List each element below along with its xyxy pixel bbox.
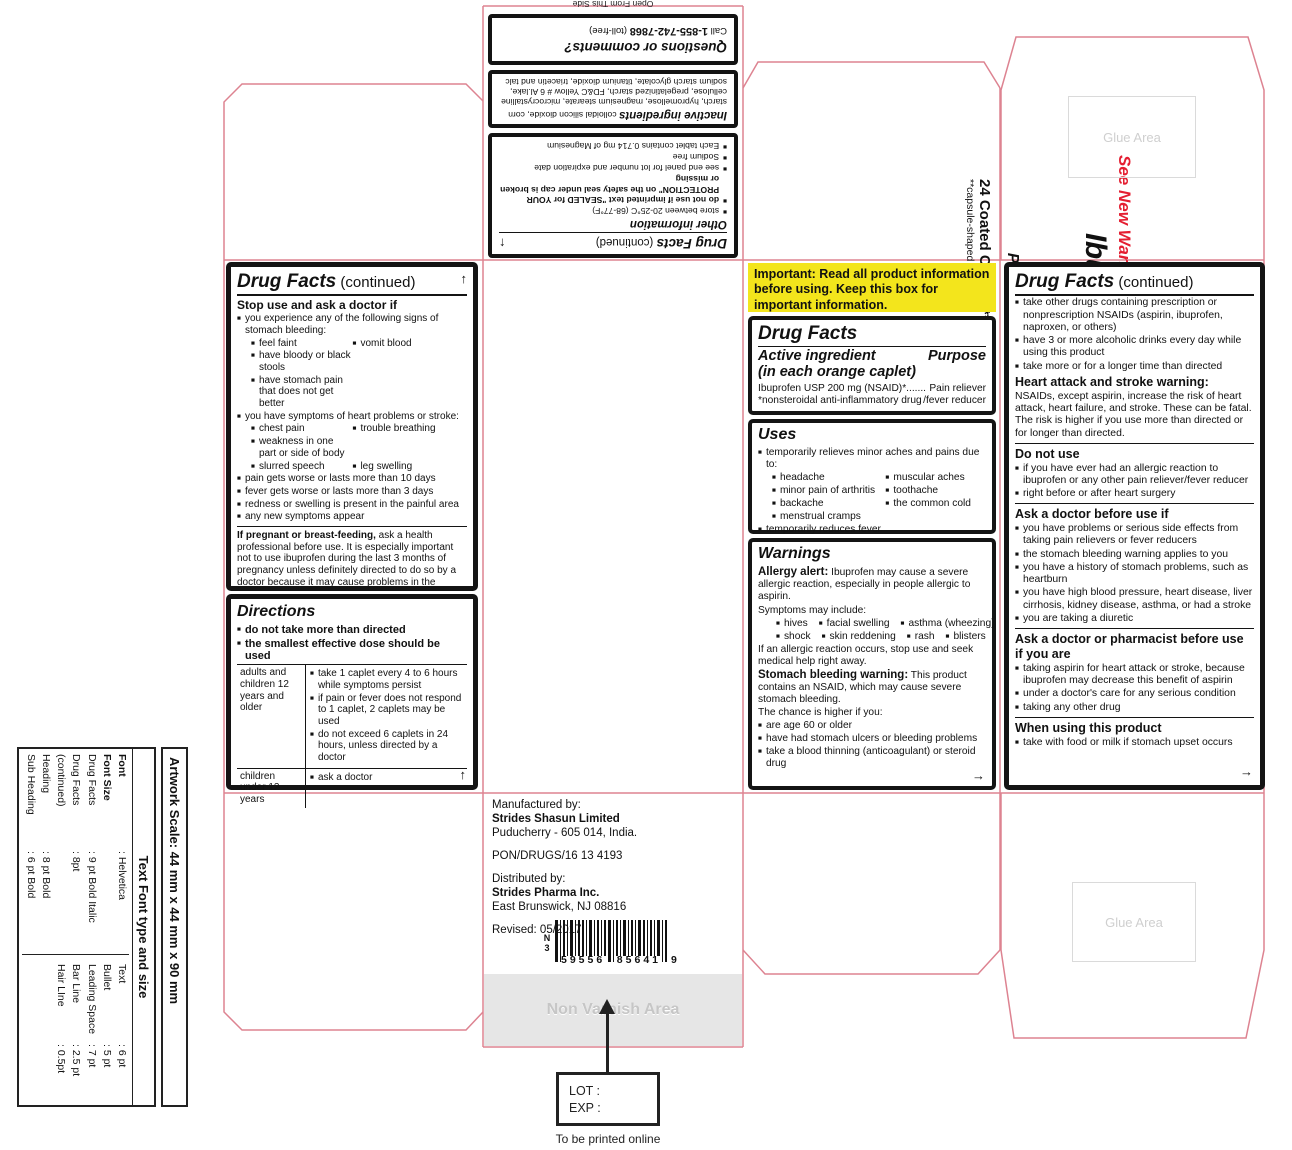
font-spec-header: Text Font type and size: [132, 749, 154, 1105]
bullet-row: ■pain gets worse or lasts more than 10 d…: [237, 473, 467, 485]
bullet-row: ■weakness in one part or side of body: [237, 436, 467, 459]
bullet-row: ■if you have ever had an allergic reacti…: [1015, 463, 1254, 488]
principal-display-panel: See New Warnings NDC 59556-856-41 Ibupro…: [483, 262, 743, 792]
dose-group-label: adults and children 12 years and older: [237, 665, 306, 768]
bullet-square-icon: ■: [353, 340, 357, 350]
bullet-row: ■temporarily reduces fever: [758, 524, 986, 536]
bullet-square-icon: ■: [723, 141, 727, 150]
questions-heading: Questions or comments?: [499, 39, 727, 55]
drug-facts-continued-title: Drug Facts (continued): [596, 234, 727, 251]
spec-row: Drug Facts (continued): 8pt: [53, 754, 83, 950]
bullet-row: ■do not exceed 6 caplets in 24 hours, un…: [310, 729, 467, 764]
lot-exp-box: LOT : EXP :: [556, 1072, 660, 1126]
font-spec-table: Text Font type and size Font: HelveticaF…: [17, 747, 156, 1107]
text-line: Puducherry - 605 014, India.: [492, 826, 734, 840]
risk-factors-list: ■are age 60 or older■have had stomach ul…: [758, 720, 986, 770]
other-information-list: ■store between 20-25°C (68-77°F)■do not …: [499, 141, 727, 216]
continuation-right-arrow-icon: →: [1240, 764, 1253, 779]
bullet-square-icon: ■: [723, 152, 727, 161]
bullet-square-icon: ■: [885, 500, 889, 510]
spec-row: Heading: 8 pt Bold: [38, 754, 53, 950]
questions-phone-line: Call 1-855-742-7868 (toll-free): [499, 24, 727, 37]
bullet-row: ■right before or after heart surgery: [1015, 488, 1254, 500]
spec-row: Font: Helvetica: [114, 754, 129, 950]
spec-row: Text: 6 pt: [114, 964, 129, 1100]
bullet-row: ■minor pain of arthritis■toothache: [758, 485, 986, 497]
bullet-square-icon: ■: [819, 620, 823, 630]
drug-facts-panel: Drug Facts Active ingredient (in each or…: [748, 316, 996, 415]
other-information-heading: Other information: [499, 217, 727, 231]
carton-artwork: Drug Facts (continued) ↑ Other informati…: [0, 0, 1292, 1150]
bullet-row: ■have had stomach ulcers or bleeding pro…: [758, 733, 986, 745]
directions-row-adults: adults and children 12 years and older ■…: [237, 665, 467, 769]
left-drug-facts-panel: Drug Facts (continued) ↑ Stop use and as…: [226, 262, 478, 591]
glue-area-top: Glue Area: [1068, 96, 1196, 178]
text-line: Strides Pharma Inc.: [492, 886, 734, 900]
when-using-heading: When using this product: [1015, 721, 1254, 736]
artwork-spec-sidebar: Artwork Scale: 44 mm x 44 mm x 90 mm Tex…: [8, 747, 188, 1107]
font-spec-right-column: Text: 6 ptBullet: 5 ptLeading Space: 7 p…: [22, 954, 129, 1100]
spec-row: Drug Facts: 9 pt Bold Italic: [83, 754, 98, 950]
ask-pharmacist-heading: Ask a doctor or pharmacist before use if…: [1015, 632, 1254, 662]
bullet-row: ■hives■facial swelling■asthma (wheezing): [758, 618, 986, 630]
bullet-row: ■slurred speech■leg swelling: [237, 461, 467, 473]
spec-row: Font Size: [99, 754, 114, 950]
bullet-row: ■temporarily relieves minor aches and pa…: [758, 447, 986, 471]
stop-use-heading: Stop use and ask a doctor if: [237, 298, 467, 312]
bullet-row: ■take 1 caplet every 4 to 6 hours while …: [310, 668, 467, 691]
bullet-square-icon: ■: [310, 774, 314, 784]
drug-facts-title: Drug Facts: [758, 323, 857, 344]
warnings-heading: Warnings: [758, 545, 986, 564]
ask-doctor-heading: Ask a doctor before use if: [1015, 507, 1254, 522]
artwork-scale-label: Artwork Scale: 44 mm x 44 mm x 90 mm: [161, 747, 188, 1107]
bullet-square-icon: ■: [1015, 615, 1019, 625]
glue-area-bottom: Glue Area: [1072, 882, 1196, 962]
spec-row: Leading Space: 7 pt: [83, 964, 98, 1100]
text-line: PON/DRUGS/16 13 4193: [492, 849, 734, 863]
bullet-square-icon: ■: [1015, 704, 1019, 714]
bullet-row: ■you have a history of stomach problems,…: [1015, 562, 1254, 587]
bullet-square-icon: ■: [1015, 490, 1019, 500]
bullet-row: ■you have high blood pressure, heart dis…: [1015, 587, 1254, 612]
bullet-square-icon: ■: [237, 640, 241, 664]
bullet-square-icon: ■: [237, 626, 241, 637]
when-using-list: ■take with food or milk if stomach upset…: [1015, 737, 1254, 749]
bullet-square-icon: ■: [723, 206, 727, 215]
directions-panel: Directions ■do not take more than direct…: [226, 594, 478, 790]
bullet-square-icon: ■: [907, 633, 911, 643]
bullet-square-icon: ■: [237, 501, 241, 511]
bullet-row: ■do not take more than directed: [237, 624, 467, 637]
directions-row-children: children under 12 years ■ask a doctor: [237, 769, 467, 808]
uses-panel: Uses ■temporarily relieves minor aches a…: [748, 419, 996, 534]
bullet-row: ■feel faint■vomit blood: [237, 338, 467, 350]
exp-label: EXP :: [569, 1101, 647, 1115]
spec-row: Sub Heading: 6 pt Bold: [22, 754, 37, 950]
manufacturer-block: Manufactured by:Strides Shasun LimitedPu…: [492, 798, 734, 937]
continuation-up-arrow-icon: ↑: [499, 236, 506, 251]
bullet-square-icon: ■: [772, 513, 776, 523]
bullet-square-icon: ■: [885, 487, 889, 497]
bullet-square-icon: ■: [1015, 363, 1019, 373]
bullet-row: ■are age 60 or older: [758, 720, 986, 732]
bullet-row: ■have stomach pain that does not get bet…: [237, 375, 467, 410]
bullet-row: ■ask a doctor: [310, 772, 467, 784]
bullet-square-icon: ■: [946, 633, 950, 643]
text-line: Distributed by:: [492, 872, 734, 886]
text-line: Manufactured by:: [492, 798, 734, 812]
bullet-square-icon: ■: [251, 352, 255, 373]
barcode-check-digit: 9: [671, 954, 677, 966]
bullet-row: ■if pain or fever does not respond to 1 …: [310, 693, 467, 728]
bullet-row: ■taking aspirin for heart attack or stro…: [1015, 663, 1254, 688]
directions-heading: Directions: [237, 603, 467, 622]
bullet-square-icon: ■: [310, 670, 314, 691]
purpose-label: Purpose: [928, 349, 986, 381]
bullet-square-icon: ■: [723, 163, 727, 172]
continuation-up-arrow-icon: ↑: [461, 271, 468, 286]
uses-heading: Uses: [758, 426, 986, 445]
bullet-row: ■the smallest effective dose should be u…: [237, 638, 467, 664]
important-notice-banner: Important: Read all product information …: [748, 263, 996, 312]
font-spec-left-column: Font: HelveticaFont SizeDrug Facts: 9 pt…: [22, 754, 129, 954]
dose-instructions: ■take 1 caplet every 4 to 6 hours while …: [306, 666, 467, 767]
warnings-panel: Warnings Allergy alert: Ibuprofen may ca…: [748, 538, 996, 790]
symptoms-intro: Symptoms may include:: [758, 605, 986, 617]
printed-online-note: To be printed online: [538, 1132, 678, 1146]
bullet-square-icon: ■: [776, 620, 780, 630]
bullet-row: ■headache■muscular aches: [758, 472, 986, 484]
bullet-square-icon: ■: [1015, 551, 1019, 561]
ask-doctor-list: ■you have problems or serious side effec…: [1015, 523, 1254, 625]
text-line: East Brunswick, NJ 08816: [492, 900, 734, 914]
bullet-square-icon: ■: [723, 174, 727, 203]
inactive-ingredients-heading: Inactive ingredients: [619, 109, 727, 121]
allergic-reaction-text: If an allergic reaction occurs, stop use…: [758, 644, 986, 668]
allergy-alert: Allergy alert: Ibuprofen may cause a sev…: [758, 566, 986, 604]
bullet-square-icon: ■: [758, 526, 762, 536]
bullet-row: ■backache■the common cold: [758, 498, 986, 510]
bullet-square-icon: ■: [237, 513, 241, 523]
bullet-square-icon: ■: [772, 500, 776, 510]
heart-attack-warning-heading: Heart attack and stroke warning:: [1015, 375, 1254, 390]
drug-facts-continued-title: Drug Facts (continued): [237, 271, 415, 293]
bullet-square-icon: ■: [310, 731, 314, 764]
bullet-square-icon: ■: [758, 449, 762, 471]
bullet-row: ■any new symptoms appear: [237, 511, 467, 523]
lot-pointer-arrowhead: [599, 999, 615, 1014]
heart-attack-warning-text: NSAIDs, except aspirin, increase the ris…: [1015, 391, 1254, 440]
bullet-square-icon: ■: [1015, 525, 1019, 548]
uses-list: ■temporarily relieves minor aches and pa…: [758, 447, 986, 536]
bullet-square-icon: ■: [1015, 589, 1019, 612]
bullet-row: ■take with food or milk if stomach upset…: [1015, 737, 1254, 749]
bullet-row: ■you have problems or serious side effec…: [1015, 523, 1254, 548]
spec-row: Hair LIne: 0.5pt: [53, 964, 68, 1100]
barcode-prefix: N 3: [541, 934, 553, 954]
bullet-row: ■chest pain■trouble breathing: [237, 423, 467, 435]
continued-risk-list: ■take other drugs containing prescriptio…: [1015, 297, 1254, 373]
bullet-row: ■you are taking a diuretic: [1015, 613, 1254, 625]
bullet-square-icon: ■: [776, 633, 780, 643]
bullet-square-icon: ■: [251, 425, 255, 435]
bullet-row: ■do not use if imprinted text "SEALED fo…: [499, 174, 727, 204]
bullet-square-icon: ■: [758, 735, 762, 745]
bullet-square-icon: ■: [237, 315, 241, 336]
bullet-row: ■fever gets worse or lasts more than 3 d…: [237, 486, 467, 498]
drug-facts-continued-title: Drug Facts (continued): [1015, 271, 1254, 296]
text-line: Strides Shasun Limited: [492, 812, 734, 826]
bullet-row: ■menstrual cramps: [758, 511, 986, 523]
questions-box: Questions or comments? Call 1-855-742-78…: [488, 14, 738, 65]
bullet-row: ■have 3 or more alcoholic drinks every d…: [1015, 335, 1254, 360]
bullet-square-icon: ■: [251, 377, 255, 410]
bullet-row: ■under a doctor's care for any serious c…: [1015, 688, 1254, 700]
bullet-row: ■Each tablet contains 0.714 mg of Magnes…: [499, 141, 727, 151]
bullet-square-icon: ■: [1015, 299, 1019, 334]
barcode-digits: 59556 85641: [561, 954, 661, 966]
pregnant-warning: If pregnant or breast-feeding, ask a hea…: [237, 530, 467, 591]
directions-bullets: ■do not take more than directed■the smal…: [237, 624, 467, 664]
bullet-row: ■have bloody or black stools: [237, 350, 467, 373]
bullet-row: ■taking any other drug: [1015, 702, 1254, 714]
do-not-use-heading: Do not use: [1015, 447, 1254, 462]
dose-group-label: children under 12 years: [237, 769, 306, 808]
inactive-ingredients-box: Inactive ingredients colloidal silicon d…: [488, 70, 738, 128]
spec-row: Bar Line: 2.5 pt: [68, 964, 83, 1100]
bullet-row: ■you have symptoms of heart problems or …: [237, 411, 467, 423]
bullet-square-icon: ■: [1015, 337, 1019, 360]
right-drug-facts-panel: Drug Facts (continued) ■take other drugs…: [1004, 262, 1265, 790]
bullet-square-icon: ■: [353, 425, 357, 435]
phone-number: 1-855-742-7868: [630, 25, 708, 37]
bullet-square-icon: ■: [237, 488, 241, 498]
ingredient-line: Ibuprofen USP 200 mg (NSAID)* ....... Pa…: [758, 383, 986, 395]
bullet-row: ■take other drugs containing prescriptio…: [1015, 297, 1254, 334]
dose-instructions: ■ask a doctor: [306, 770, 467, 807]
bullet-square-icon: ■: [1015, 665, 1019, 688]
active-ingredient-row: Active ingredient (in each orange caplet…: [758, 349, 986, 381]
bullet-square-icon: ■: [1015, 465, 1019, 488]
drug-facts-continued-top-box: Drug Facts (continued) ↑ Other informati…: [488, 133, 738, 258]
bullet-square-icon: ■: [1015, 690, 1019, 700]
do-not-use-list: ■if you have ever had an allergic reacti…: [1015, 463, 1254, 501]
continuation-right-arrow-icon: →: [972, 768, 985, 783]
ask-pharmacist-list: ■taking aspirin for heart attack or stro…: [1015, 663, 1254, 714]
bullet-square-icon: ■: [310, 695, 314, 728]
bullet-row: ■see end panel for lot number and expira…: [499, 163, 727, 173]
spec-row: Bullet: 5 pt: [99, 964, 114, 1100]
bullet-square-icon: ■: [237, 475, 241, 485]
bullet-row: ■store between 20-25°C (68-77°F): [499, 206, 727, 216]
bullet-square-icon: ■: [822, 633, 826, 643]
bullet-square-icon: ■: [772, 487, 776, 497]
nsaid-note-line: *nonsteroidal anti-inflammatory drug /fe…: [758, 395, 986, 407]
stop-use-list: ■you experience any of the following sig…: [237, 313, 467, 523]
bullet-square-icon: ■: [1015, 739, 1019, 749]
bullet-row: ■you experience any of the following sig…: [237, 313, 467, 336]
continuation-up-arrow-icon: ↑: [460, 767, 467, 782]
chance-higher-text: The chance is higher if you:: [758, 707, 986, 719]
top-end-panel: Drug Facts (continued) ↑ Other informati…: [488, 6, 738, 258]
bullet-square-icon: ■: [353, 463, 357, 473]
bullet-square-icon: ■: [901, 620, 905, 630]
bullet-square-icon: ■: [251, 340, 255, 350]
bullet-square-icon: ■: [772, 474, 776, 484]
lot-pointer-line: [606, 1013, 609, 1073]
bullet-row: ■redness or swelling is present in the p…: [237, 499, 467, 511]
bullet-row: ■shock■skin reddening■rash■blisters: [758, 631, 986, 643]
bullet-square-icon: ■: [758, 722, 762, 732]
bullet-row: ■Sodium free: [499, 152, 727, 162]
directions-table: adults and children 12 years and older ■…: [237, 664, 467, 808]
barcode: N 3 59556 85641 9: [541, 920, 701, 975]
bullet-square-icon: ■: [1015, 564, 1019, 587]
stomach-bleeding-warning: Stomach bleeding warning: This product c…: [758, 669, 986, 707]
bullet-square-icon: ■: [758, 748, 762, 770]
lot-label: LOT :: [569, 1084, 647, 1098]
bullet-row: ■take a blood thinning (anticoagulant) o…: [758, 746, 986, 770]
symptoms-list: ■hives■facial swelling■asthma (wheezing)…: [758, 618, 986, 643]
bullet-row: ■take more or for a longer time than dir…: [1015, 361, 1254, 373]
bullet-square-icon: ■: [237, 413, 241, 423]
bullet-square-icon: ■: [251, 463, 255, 473]
bullet-row: ■the stomach bleeding warning applies to…: [1015, 549, 1254, 561]
bullet-square-icon: ■: [251, 438, 255, 459]
open-from-this-side-label: Open From This Side: [488, 0, 738, 9]
bullet-square-icon: ■: [885, 474, 889, 484]
